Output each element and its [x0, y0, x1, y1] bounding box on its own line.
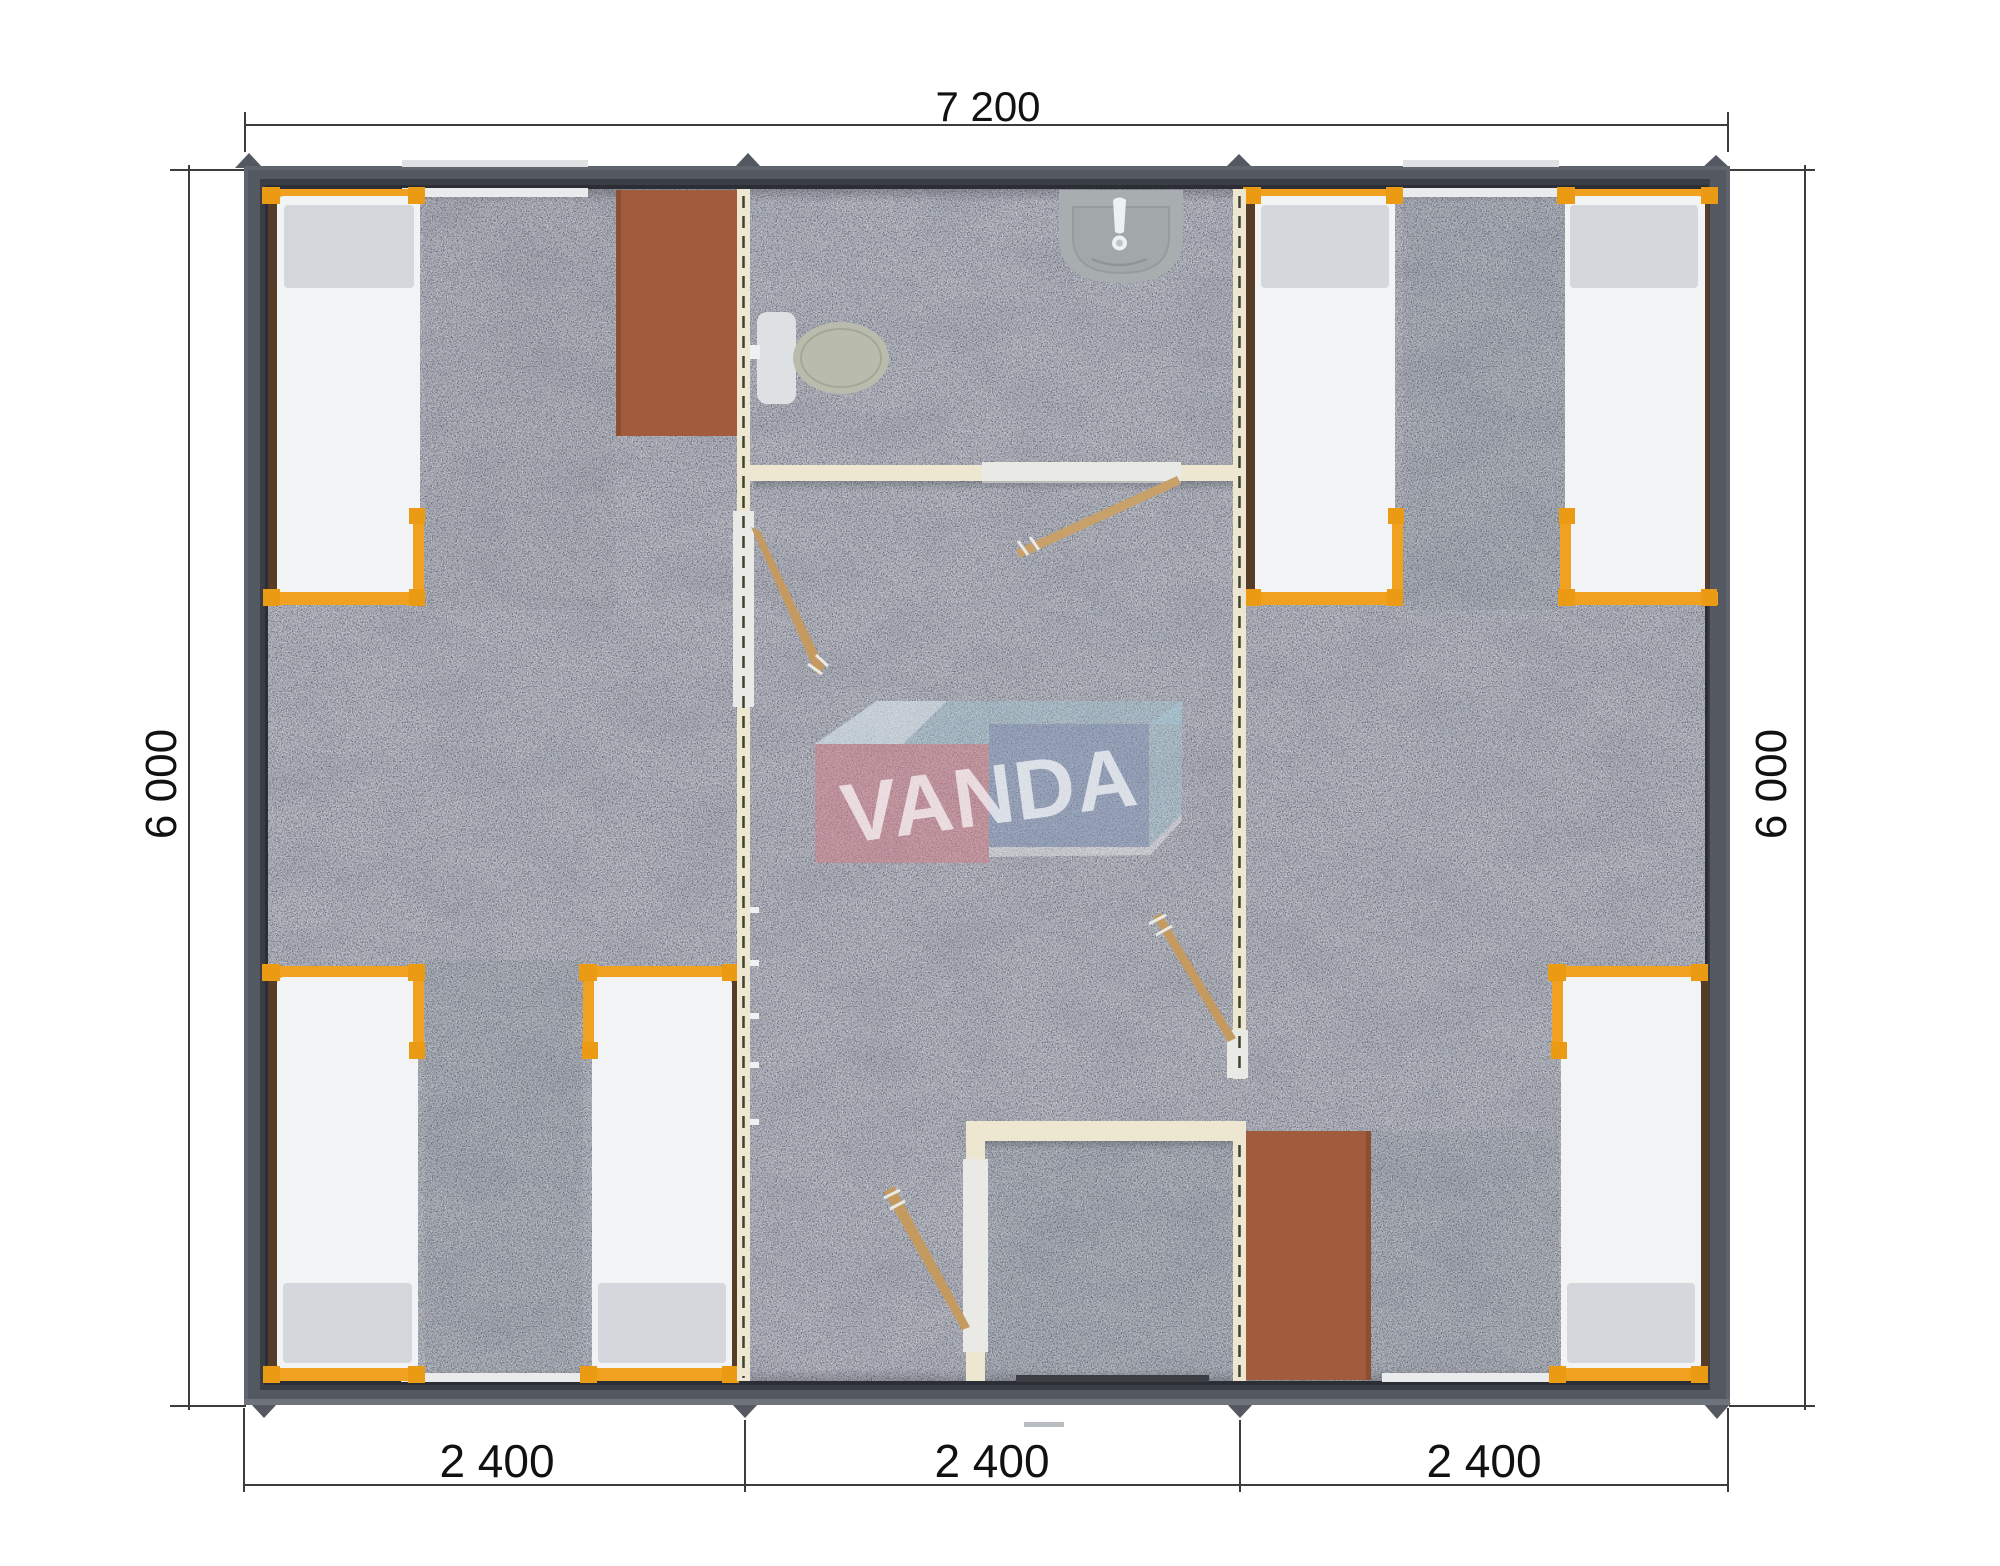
svg-text:2 400: 2 400 [934, 1435, 1049, 1487]
svg-text:6 000: 6 000 [137, 729, 186, 839]
svg-text:2 400: 2 400 [1426, 1435, 1541, 1487]
svg-text:6 000: 6 000 [1747, 729, 1796, 839]
svg-text:2 400: 2 400 [439, 1435, 554, 1487]
svg-text:7 200: 7 200 [935, 83, 1040, 130]
